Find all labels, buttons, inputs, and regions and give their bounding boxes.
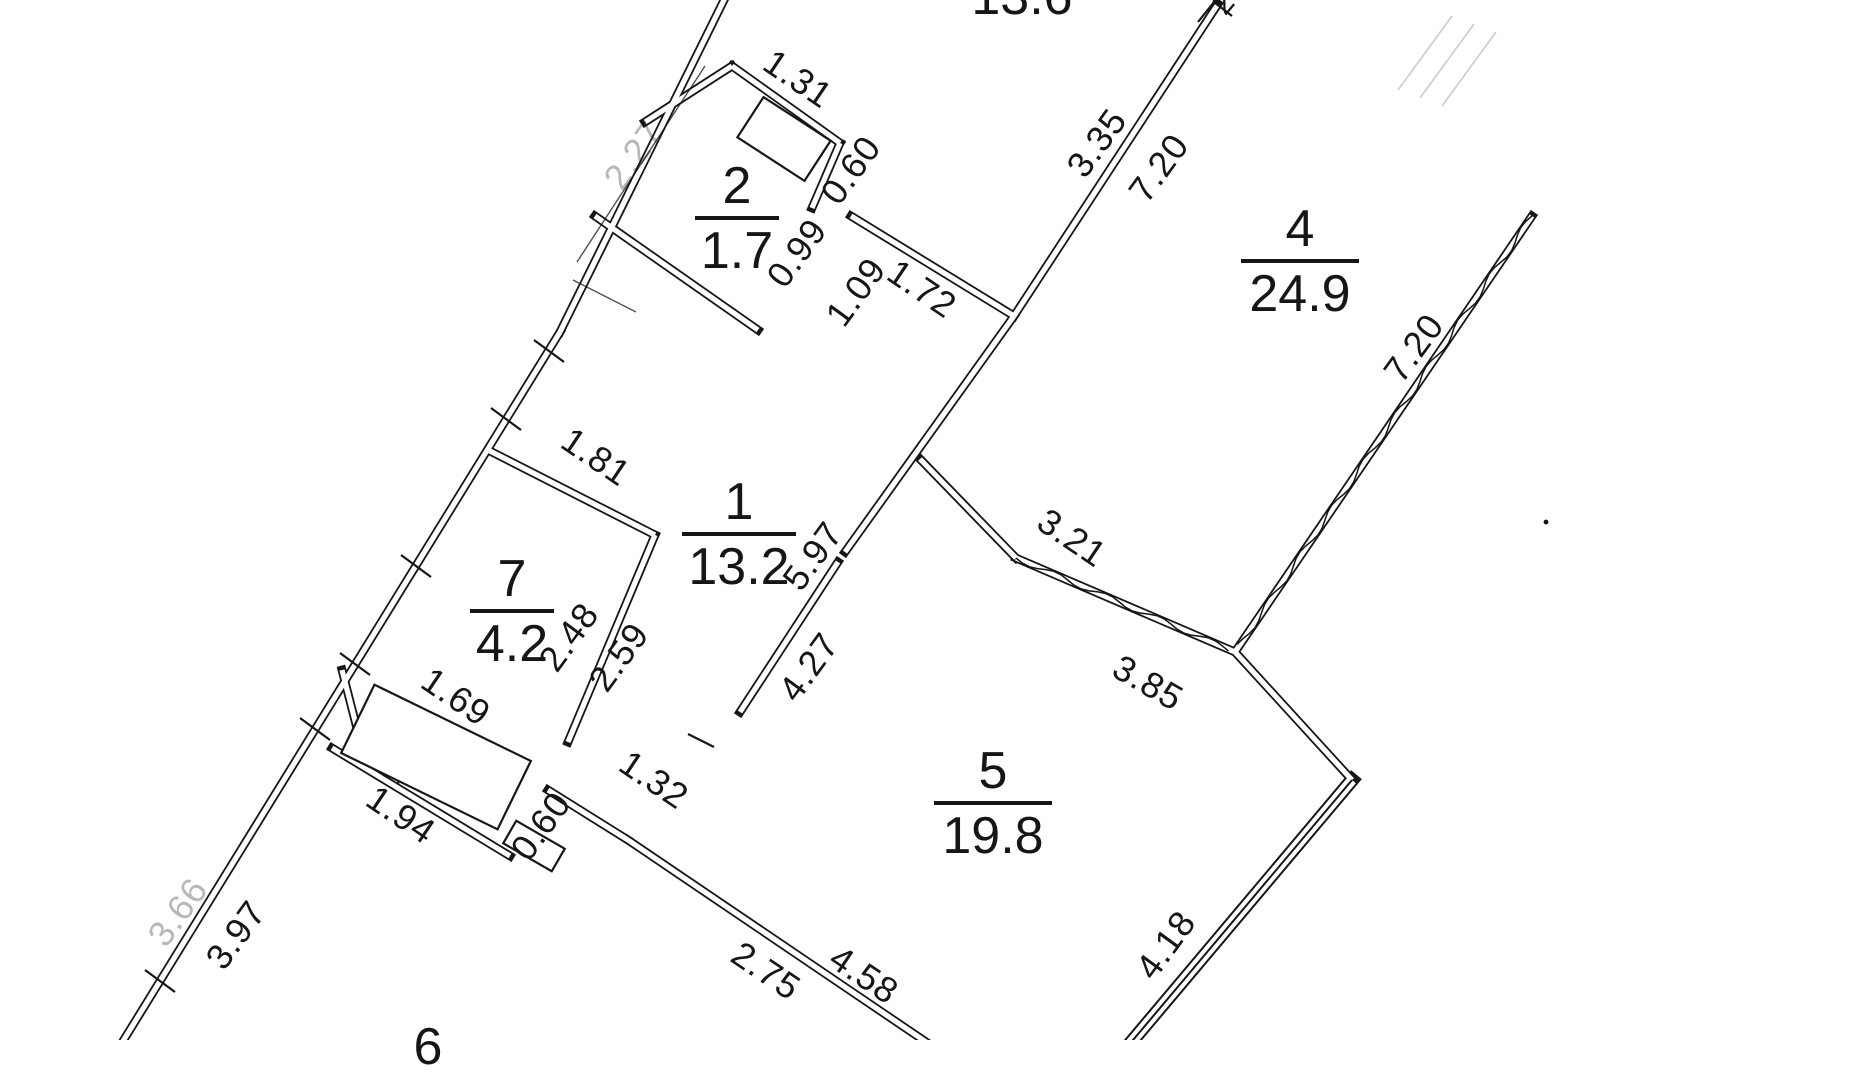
faint-hatch-line [1398,16,1452,90]
wall-core [595,216,758,330]
wall-core [560,0,727,332]
wall-core [1014,4,1218,316]
wall-core [920,459,1016,558]
faint-hatch-line [1442,32,1496,106]
thin-line [577,66,705,262]
fixture-rect [737,97,830,181]
wall-core [1235,216,1532,652]
wall-core [845,316,1014,552]
stray-dot [1544,520,1549,525]
tick-line [688,734,714,747]
wall-core [1235,652,1352,780]
floor-plan: 1.310.600.991.091.723.357.207.201.815.97… [0,0,1850,1040]
wall-core [548,790,628,840]
wall-core [488,450,655,535]
wall-core [568,535,655,742]
faint-hatch-line [1420,24,1474,98]
wall-core [851,216,1014,316]
floor-plan-linework [0,0,1850,1040]
wall-core [1016,558,1235,652]
fixture-rect [503,821,564,872]
wall-core [740,562,838,712]
